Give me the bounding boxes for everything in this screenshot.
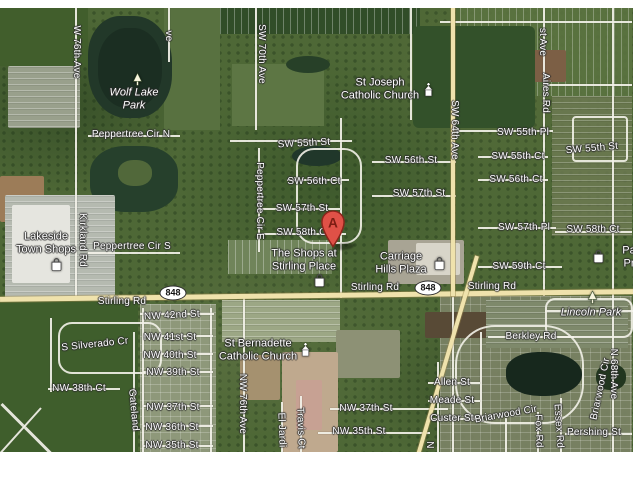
poi-label-line: St Joseph (341, 76, 419, 89)
street-label: Berkley Rd (506, 332, 557, 342)
street-label: SW 58th Ct (566, 225, 619, 235)
map-marker-a[interactable]: A (320, 210, 346, 248)
church-icon[interactable] (298, 342, 313, 357)
street-label: El Jardi (275, 412, 286, 447)
street-label: Travis Ct (294, 407, 305, 449)
street-label: Peppertree Cir S (93, 242, 171, 252)
street-label: SW 57th St (393, 189, 446, 199)
road-segment (88, 252, 180, 254)
shopping-bag-icon[interactable] (312, 273, 327, 288)
street-label: SW 70th Ave (256, 24, 266, 84)
poi-label-line: The Shops at (271, 247, 336, 260)
poi-label-line: Carriage (375, 250, 426, 263)
street-label: NW 41st St (144, 333, 197, 343)
road-segment (452, 296, 454, 452)
poi-label-line: St Bernadette (219, 337, 297, 350)
street-label: Peppertree Cir N (92, 130, 170, 140)
terrain-patch (118, 160, 152, 186)
marker-letter: A (328, 215, 338, 230)
street-label: SW 56th Ct (287, 177, 340, 187)
street-label: NW 37th St (339, 404, 392, 414)
poi-label-line: Pr (622, 257, 633, 270)
street-label: NW 39th St (146, 368, 199, 378)
street-label: Stirling Rd (468, 282, 516, 292)
street-label: SW 57th Pl (498, 223, 550, 233)
map-viewport[interactable]: W 76th AveveSW 70th Avest AveAires RdSW … (0, 0, 640, 480)
road-loop (572, 116, 628, 162)
poi-label-line: Lakeside (16, 230, 76, 243)
poi-label-line: Catholic Church (219, 350, 297, 363)
street-label: Aires Rd (540, 73, 550, 113)
street-label: SW 56th Ct (489, 175, 542, 185)
street-label: NW 35th St (332, 427, 385, 437)
terrain-patch (164, 8, 220, 130)
poi-label[interactable]: CarriageHills Plaza (375, 250, 426, 275)
road-segment (210, 308, 212, 452)
route-shield-848: 848 (414, 281, 441, 296)
poi-label-line: Catholic Church (341, 89, 419, 102)
poi-label[interactable]: St BernadetteCatholic Church (219, 337, 297, 362)
street-label: NW 40th St (143, 351, 196, 361)
street-label: SW 59th Ct (492, 262, 545, 272)
street-label: NW 76th Ave (237, 374, 247, 434)
street-label: NW 37th St (146, 403, 199, 413)
road-segment (440, 21, 632, 23)
poi-label-line: Pa (622, 244, 633, 257)
street-label: NW 35th St (145, 441, 198, 451)
street-label: Custer St (430, 414, 473, 424)
poi-label-line: Stirling Place (271, 260, 336, 273)
shopping-bag-icon[interactable] (591, 249, 606, 264)
poi-label-line: Hills Plaza (375, 263, 426, 276)
terrain-patch (232, 64, 324, 126)
street-label: SW 55th Ct (491, 152, 544, 162)
street-label: st Ave (537, 28, 547, 56)
poi-label-line: Wolf Lake (110, 86, 159, 99)
street-label: Peppertree Cir E (254, 162, 264, 240)
poi-label[interactable]: PaPr (622, 244, 633, 269)
poi-label[interactable]: Lincoln Park (561, 307, 622, 320)
street-label: Allen St (434, 378, 470, 388)
terrain-patch (220, 8, 420, 34)
street-label: N (424, 441, 434, 448)
street-label: NW 36th St (145, 423, 198, 433)
street-label: W 76th Ave (71, 26, 81, 79)
street-label: ve (163, 31, 173, 42)
church-icon[interactable] (421, 82, 436, 97)
street-label: N 68th Ave (608, 349, 618, 400)
street-label: Stirling Rd (351, 283, 399, 293)
park-tree-icon[interactable] (130, 72, 145, 87)
shopping-bag-icon[interactable] (49, 257, 64, 272)
shopping-bag-icon[interactable] (432, 256, 447, 271)
street-label: Fox Rd (532, 414, 543, 448)
street-label: Essex Rd (551, 404, 564, 449)
poi-label[interactable]: The Shops atStirling Place (271, 247, 336, 272)
poi-label-line: Town Shops (16, 243, 76, 256)
street-label: SW 55th Pl (497, 128, 549, 138)
street-label: Meade St (430, 396, 474, 406)
route-shield-848: 848 (159, 286, 186, 301)
terrain-patch (336, 330, 400, 378)
street-label: Pershing St (567, 428, 621, 438)
terrain-patch (8, 66, 80, 128)
water-body (286, 56, 330, 73)
street-label: Kirkland Rd (77, 213, 87, 267)
poi-label-line: Park (110, 99, 159, 112)
park-tree-icon[interactable] (585, 290, 600, 305)
street-label: Stirling Rd (98, 297, 146, 307)
poi-label[interactable]: LakesideTown Shops (16, 230, 76, 255)
terrain-patch (222, 300, 340, 342)
satellite-map-canvas[interactable]: W 76th AveveSW 70th Avest AveAires RdSW … (0, 8, 633, 452)
street-label: SW 64th Ave (449, 100, 459, 160)
terrain-patch (413, 26, 535, 128)
poi-label-line: Lincoln Park (561, 307, 622, 320)
poi-label[interactable]: St JosephCatholic Church (341, 76, 419, 101)
road-segment (410, 8, 412, 120)
poi-label[interactable]: Wolf LakePark (110, 86, 159, 111)
street-label: SW 56th St (385, 156, 438, 166)
street-label: NW 38th Ct (52, 384, 106, 394)
road-segment (545, 84, 632, 86)
road-segment (50, 318, 52, 392)
